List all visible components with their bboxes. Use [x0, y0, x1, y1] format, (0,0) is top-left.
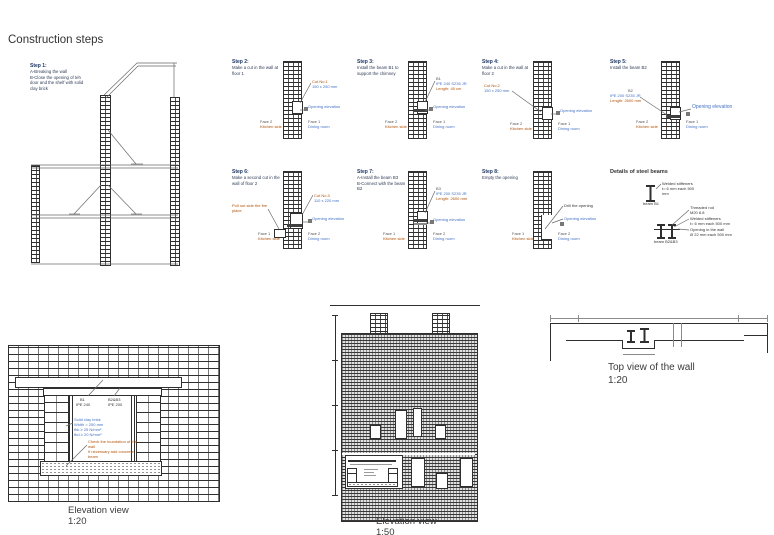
beam-length: Length: 2600 mm [436, 196, 467, 201]
wall-right-edge [767, 323, 768, 353]
steel-beam-details-panel: Details of steel beams Welded stiffeners… [610, 167, 774, 267]
wall-column-left [31, 165, 40, 263]
drawing-sheet: Construction steps Step 1: A-Breaking th… [0, 0, 774, 535]
beam-b3-drawing [414, 219, 427, 222]
wall-drawing [408, 61, 427, 139]
threaded-rod-note: Threaded rod M20 8.8 [690, 205, 714, 215]
window [411, 458, 425, 487]
face-left-room: Kitchen side [385, 124, 407, 129]
wall-cut [542, 107, 553, 120]
beam-b2b3-size: IPE 200 [108, 402, 122, 407]
wall-drawing [408, 171, 427, 249]
beam-b3-section-icon [668, 224, 676, 239]
view-scale: 1:50 [376, 527, 395, 535]
beam-b1-label: beam B1 [643, 201, 659, 206]
face-left-room: Kitchen side [260, 124, 282, 129]
step-6-panel: Step 6: Make a second cut in the wall of… [232, 167, 357, 262]
wall-left-edge [550, 323, 551, 361]
opening-elevation-label: Opening elevation [433, 217, 465, 222]
step-7-panel: Step 7: A-Install the beam B3 B-Connect … [357, 167, 482, 262]
wall-drawing [283, 61, 302, 139]
face-right-room: Dining room [433, 236, 455, 241]
view-scale: 1:20 [68, 516, 87, 527]
dimension-tick [767, 315, 768, 322]
face-left-room: Kitchen side [258, 236, 280, 241]
wall-outer-line [550, 323, 768, 324]
stiffener-note-b1: Welded stiffeners t= 6 mm each 500 mm [662, 181, 694, 196]
wall-return-line [744, 335, 768, 336]
dimension-tick [738, 315, 739, 322]
facade-drawing [341, 333, 478, 522]
page-title: Construction steps [8, 34, 103, 46]
beam-b2b3-label: beam B2&B3 [654, 239, 678, 244]
inset-note-line [364, 472, 374, 473]
notch-side [654, 340, 655, 349]
wall-cut [417, 101, 428, 114]
face-right-room: Dining room [558, 126, 580, 131]
window [395, 410, 407, 439]
face-left-room: Kitchen side [383, 236, 405, 241]
wall-drawing [661, 61, 680, 139]
dimension-tick [332, 495, 338, 496]
face-right-room: Dining room [558, 236, 580, 241]
beam-b2-section-icon [657, 224, 665, 239]
window [460, 458, 473, 487]
lintel-beam-b1-drawing [15, 377, 182, 388]
view-caption: Elevation view [68, 505, 129, 516]
dimension-tick [550, 315, 551, 322]
wall-cut [670, 107, 681, 120]
formwork-line [72, 395, 73, 461]
step-8-panel: Step 8: Empty the opening Drill the open… [482, 167, 607, 262]
window [413, 408, 422, 437]
face-left-room: Kitchen side [636, 124, 658, 129]
view-scale: 1:20 [608, 375, 627, 387]
face-right-room: Dining room [433, 124, 455, 129]
threaded-rod-drawing [654, 229, 680, 230]
cut-dimension: 110 x 220 mm [314, 198, 339, 203]
dimension-tick [332, 405, 338, 406]
inset-note-line [364, 475, 376, 476]
face-right-room: Dining room [686, 124, 708, 129]
beam-drawing [287, 224, 302, 227]
step-description: Install the beam B1 to support the chimn… [357, 65, 415, 76]
wall-inner-line [566, 340, 622, 341]
beam-length: Length: 45 cm [436, 86, 461, 91]
sub-dimension-line [623, 354, 655, 355]
right-pier-drawing [136, 395, 161, 463]
face-right-room: Dining room [308, 236, 330, 241]
cut-dimension: 150 x 250 mm [484, 88, 509, 93]
beam-section-symbol [640, 328, 649, 343]
beam-b1-drawing [414, 109, 427, 112]
inset-foundation [347, 482, 398, 487]
emptied-opening [541, 215, 552, 240]
wall-cut [292, 101, 303, 114]
notch-bottom [622, 348, 655, 349]
formwork-line [69, 395, 70, 461]
dimension-extension [681, 323, 682, 347]
wall-column-right [170, 97, 180, 266]
step-2-panel: Step 2: Make a cut in the wall at floor … [232, 57, 357, 152]
dimension-line [550, 318, 768, 319]
top-view-panel: Top view of the wall 1:20 [548, 313, 772, 388]
pullout-note: Pull out side the fire place [232, 203, 270, 213]
window [370, 425, 381, 439]
beam-b2-drawing [667, 115, 680, 118]
wall-opening-note: Opening in the wall Ø 22 mm each 500 mm [690, 227, 732, 237]
elevation-1-50-panel: Elevation view 1:50 [330, 303, 482, 535]
left-pier-drawing [44, 395, 69, 463]
opening-elevation-label: Opening elevation [692, 104, 732, 110]
opening-elevation-label: Opening elevation [308, 104, 340, 109]
face-left-room: Kitchen side [510, 126, 532, 131]
step-description: A-Breaking the wall B-Close the opening … [30, 69, 92, 91]
datum-line [330, 305, 480, 306]
inset-beam-line [348, 460, 396, 462]
view-caption: Elevation view [376, 516, 437, 527]
face-right-room: Dining room [308, 124, 330, 129]
wall-column-middle [100, 95, 111, 266]
beam-b1-section-icon [646, 185, 655, 202]
drill-opening-note: Drill the opening [564, 203, 593, 208]
step-description: Make a cut in the wall at floor 1 [232, 65, 290, 76]
dimension-tick [332, 450, 338, 451]
beam-section-symbol [627, 330, 635, 343]
details-title: Details of steel beams [610, 169, 668, 175]
step-5-panel: Step 5: Install the beam B2 B2 IPE 200 S… [610, 57, 770, 152]
opening-elevation-label: Opening elevation [433, 104, 465, 109]
step-description: Make a second cut in the wall of floor 2 [232, 175, 290, 186]
step-4-panel: Step 4: Make a cut in the wall at floor … [482, 57, 607, 152]
dimension-tick [578, 315, 579, 322]
step-1-panel: Step 1: A-Breaking the wall B-Close the … [28, 60, 188, 272]
face-left-room: Kitchen side [512, 236, 534, 241]
opening-elevation-label: Opening elevation [560, 108, 592, 113]
leader-lines [610, 57, 770, 152]
elevation-1-20-panel: B1 IPE 240 B2&B3 IPE 200 Solid clay bric… [8, 345, 226, 527]
opening-elevation-label: Opening elevation [312, 216, 344, 221]
window [435, 425, 446, 439]
dimension-tick [332, 315, 338, 316]
brick-spec-note: Solid clay brick Width = 250 mm fbk ≥ 25… [74, 417, 103, 437]
step-3-panel: Step 3: Install the beam B1 to support t… [357, 57, 482, 152]
foundation-note: Check the foundation of the wall If nece… [88, 439, 137, 459]
window [436, 473, 448, 489]
stiffener-note-b23: Welded stiffeners t= 6 mm each 500 mm [690, 216, 730, 226]
wall-drawing [533, 61, 552, 139]
step-description: Make a cut in the wall at floor 2 [482, 65, 540, 76]
dimension-extension [673, 323, 674, 347]
foundation-drawing [40, 461, 162, 476]
step-description: Install the beam B2 [610, 65, 668, 71]
step-description: Empty the opening [482, 175, 540, 181]
beam-b1-size: IPE 240 [76, 402, 90, 407]
inset-beam-line-2 [350, 464, 392, 465]
wall-inner-line [654, 340, 744, 341]
beam-length: Length: 2600 mm [610, 98, 641, 103]
dimension-tick [332, 360, 338, 361]
inset-note-line [364, 469, 378, 470]
opening-elevation-label: Opening elevation [564, 216, 596, 221]
beam-b2-drawing [414, 223, 427, 225]
view-caption: Top view of the wall [608, 362, 695, 374]
cut-dimension: 150 x 250 mm [312, 84, 337, 89]
